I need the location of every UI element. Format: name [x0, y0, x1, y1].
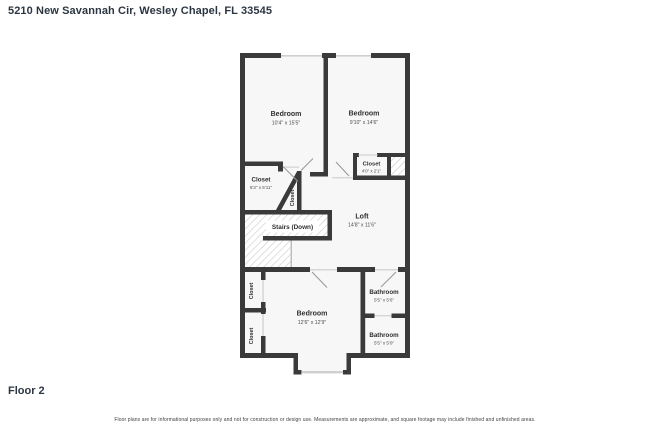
- room-label-closet-mid: Closet: [252, 177, 271, 184]
- room-dims-bathroom-2: 5'5" x 5'0": [374, 341, 394, 346]
- disclaimer-text: Floor plans are for informational purpos…: [0, 417, 650, 423]
- room-label-bedroom-tl: Bedroom: [271, 111, 302, 118]
- window: [281, 55, 322, 57]
- room-label-closet-tr: Closet: [363, 162, 381, 168]
- bay-window: [302, 371, 343, 373]
- room-dims-closet-mid: 6'3" x 5'11": [250, 185, 273, 190]
- room-dims-bedroom-tl: 10'4" x 15'5": [272, 121, 301, 127]
- room-dims-closet-tr: 4'0" x 2'1": [362, 169, 382, 174]
- room-label-closet-b2: Closet: [249, 328, 255, 345]
- room-label-bedroom-tr: Bedroom: [349, 111, 380, 118]
- room-label-closet-angled: Closet: [290, 190, 296, 207]
- room-label-bathroom-1: Bathroom: [369, 289, 399, 296]
- room-label-bedroom-b: Bedroom: [297, 311, 328, 318]
- hatched-area-chase: [391, 157, 405, 176]
- room-dims-loft: 14'8" x 11'6": [348, 223, 376, 229]
- stairs-label: Stairs (Down): [272, 224, 313, 231]
- room-label-closet-b1: Closet: [249, 283, 255, 300]
- room-dims-bedroom-b: 12'6" x 12'9": [298, 320, 327, 326]
- room-dims-bathroom-1: 5'5" x 5'6": [374, 298, 394, 303]
- room-dims-bedroom-tr: 9'10" x 14'6": [350, 120, 379, 126]
- floor-plan: Bedroom 10'4" x 15'5" Bedroom 9'10" x 14…: [0, 0, 650, 433]
- floor-label: Floor 2: [8, 385, 45, 397]
- room-label-loft: Loft: [355, 214, 369, 221]
- window: [336, 55, 371, 57]
- room-label-bathroom-2: Bathroom: [369, 332, 399, 339]
- floor-plan-page: 5210 New Savannah Cir, Wesley Chapel, FL…: [0, 0, 650, 433]
